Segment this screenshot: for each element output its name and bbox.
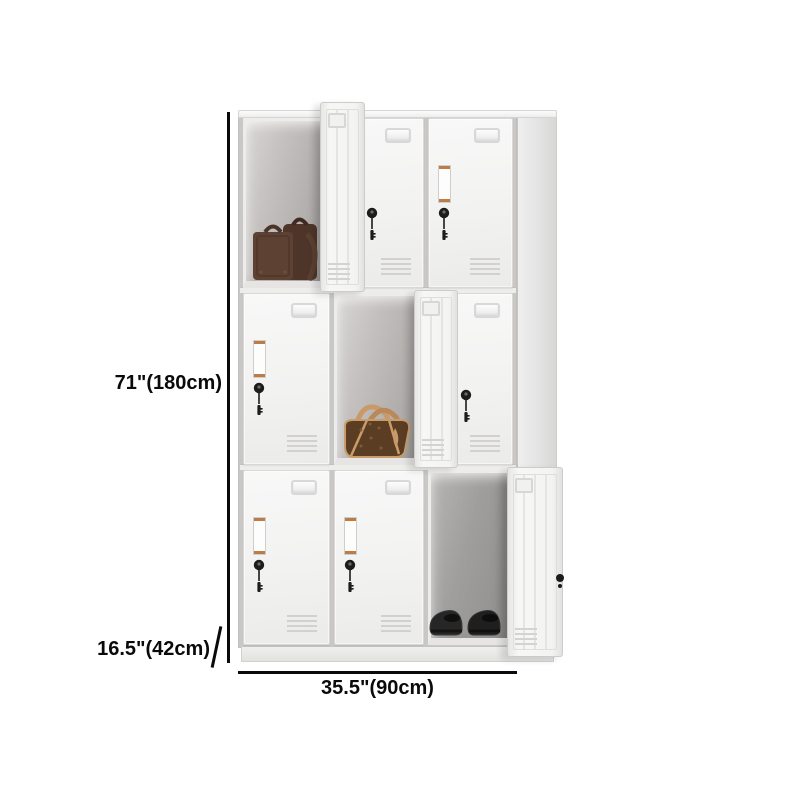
locker-cabinet-top	[238, 110, 557, 118]
door-handle	[291, 303, 317, 318]
lock-and-key-icon	[459, 389, 473, 429]
vent-grille	[381, 258, 411, 275]
open-door-bottom-right	[507, 467, 563, 657]
open-door-middle-center	[414, 290, 458, 468]
door-handle-cutout	[515, 478, 533, 493]
depth-dimension-label: 16.5"(42cm)	[40, 638, 210, 660]
width-dimension-line	[238, 671, 517, 674]
door-handle	[385, 128, 411, 143]
vent-grille	[470, 258, 500, 275]
door-handle	[474, 128, 500, 143]
height-dimension-label: 71"(180cm)	[40, 372, 222, 394]
door-handle	[291, 480, 317, 495]
vent-grille	[470, 435, 500, 452]
lock-and-key-icon	[437, 207, 451, 247]
vent-grille	[287, 435, 317, 452]
door-handle-cutout	[328, 113, 346, 128]
door-inner-panel	[513, 474, 557, 650]
door-handle-cutout	[422, 301, 440, 316]
depth-dimension-tick	[211, 626, 223, 668]
locker-door-r3c1	[243, 470, 330, 645]
open-door-top-left	[320, 102, 365, 292]
door-inner-panel	[420, 297, 452, 461]
label-holder	[253, 340, 266, 378]
locker-door-r1c3	[428, 118, 513, 288]
lock-and-key-icon	[252, 382, 266, 422]
lock-icon	[556, 574, 564, 582]
door-inner-panel	[326, 109, 359, 285]
handbag-image	[337, 398, 419, 462]
width-dimension-label: 35.5"(90cm)	[238, 677, 517, 699]
door-handle	[474, 303, 500, 318]
door-handle	[385, 480, 411, 495]
label-holder	[438, 165, 451, 203]
lock-and-key-icon	[365, 207, 379, 247]
label-holder	[253, 517, 266, 555]
shoes-image	[426, 598, 510, 642]
lock-and-key-icon	[252, 559, 266, 599]
vent-grille	[381, 615, 411, 632]
lock-and-key-icon	[343, 559, 357, 599]
locker-door-r2c1	[243, 293, 330, 465]
vent-grille	[422, 439, 444, 456]
label-holder	[344, 517, 357, 555]
vent-grille	[287, 615, 317, 632]
vent-grille	[515, 628, 537, 645]
vent-grille	[328, 263, 350, 280]
height-dimension-line	[227, 112, 230, 663]
locker-door-r3c2	[334, 470, 424, 645]
product-image: 71"(180cm) 16.5"(42cm) 35.5"(90cm)	[0, 0, 800, 800]
suitcase-image	[249, 216, 323, 284]
